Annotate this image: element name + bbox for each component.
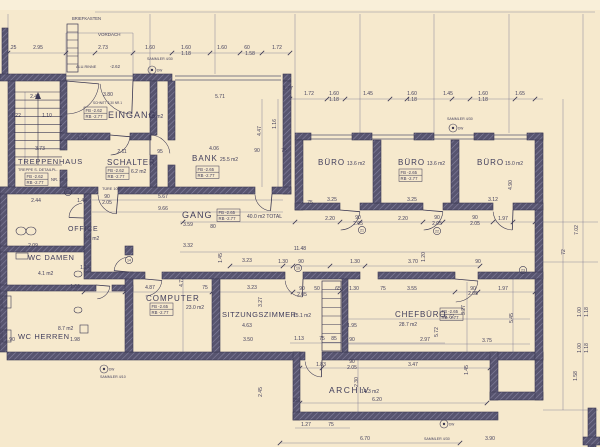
wall-segment [212,279,220,352]
room-area-label: 14.3 m2 [361,389,379,395]
dimension-label: 1.30 [349,286,359,292]
dimension-label: 3.25 [407,197,417,203]
sammler-symbol-label: DW [109,368,114,372]
wall-segment [295,203,340,210]
dimension-label: 1.20 [421,252,427,262]
room-label-bank: BANK [192,154,218,163]
dimension-label: 2.97 [420,337,430,343]
room-area-label: 15.1 m2 [293,313,311,319]
dimension-label: 95 [157,149,163,155]
level-tag-text: RB -2.77 [219,216,237,221]
sammler-symbol-label: DW [449,423,454,427]
dimension-label: 6.20 [372,397,382,403]
wall-segment [513,203,543,210]
dimension-label: 65 [335,286,341,292]
wall-segment [8,81,15,187]
room-label-office: OFFICE [68,226,98,233]
level-tag-text: RB -2.77 [108,174,126,179]
door-tag-number: 23 [521,268,525,272]
level-tag-text: FB -2.65 [442,309,459,314]
note-label: BRIEFKASTEN [72,16,101,21]
wall-segment [272,187,291,194]
room-area-label: 23.0 m2 [186,305,204,311]
room-area-label: 13.6 m2 [427,161,445,167]
wall-segment [2,28,8,78]
wall-segment [125,246,133,255]
room-area-label: 4.1 m2 [38,271,54,277]
level-tag-text: RB -2.77 [401,176,419,181]
dimension-label: 1.45 [443,91,453,97]
wall-segment [303,272,360,279]
level-tag-text: FB -2.65 [152,304,169,309]
dimension-label: 1.95 [347,323,357,329]
wall-segment [342,279,348,352]
dimension-label: 2.09 [28,243,38,249]
dimension-label: 1.00 [577,343,583,353]
dimension-label: 5.72 [434,327,440,337]
note-label: SAMMLER 4/30 [424,437,450,441]
dimension-label: 2.45 [258,387,264,397]
room-area-label: 8.7 m2 [58,326,74,332]
dimension-label: 90 [298,259,304,265]
wall-segment [168,165,175,187]
wall-segment [373,140,381,203]
wall-segment [84,194,91,272]
level-tag-text: FB -2.65 [219,210,236,215]
dimension-label: 1.90 [5,337,15,343]
dimension-label: 1.18 [329,97,339,103]
room-label-schalter: SCHALTER [107,158,155,167]
dimension-label: 1.83 [316,362,326,368]
wall-segment [84,272,145,279]
note-label: -2.62 [110,64,121,69]
dimension-label: 1.06 [70,284,80,290]
dimension-label: 1.14 [80,265,90,271]
wall-segment [378,272,455,279]
room-area-label: 25.5 m2 [220,157,238,163]
dimension-label: 90 [475,259,481,265]
room-label-buero-1: BÜRO [318,158,345,167]
dimension-label: 4.06 [209,146,219,152]
room-area-label: 4.9 m2 [84,236,100,242]
wall-segment [451,140,459,203]
dimension-label: 3.23 [247,285,257,291]
level-tag-text: FB -2.65 [401,170,418,175]
wall-segment [414,133,434,140]
dimension-label: 75 [380,286,386,292]
dimension-label: 1.72 [304,91,314,97]
dimension-label: 3.55 [407,286,417,292]
room-label-wc-damen: WC DAMEN [28,253,74,262]
note-label: TÜRE 100 [102,187,120,191]
room-area-label: 15.0 m2 [505,161,523,167]
room-label-sitzungszimmer: SITZUNGSZIMMER [222,310,297,319]
room-area-label: 6.2 m2 [131,169,147,175]
dimension-label: 3.75 [482,338,492,344]
level-tag-text: FB -2.65 [198,167,215,172]
dimension-label: 11.48 [294,246,306,252]
dimension-label: 5.45 [509,313,515,323]
note-label: VORDACH [98,32,121,37]
sammler-symbol-label: DW [157,69,162,73]
dimension-label: 1.65 [515,91,525,97]
dimension-label: 1.45 [363,91,373,97]
level-tag-text: FB -2.62 [27,174,44,179]
dimension-label: 1.98 [70,337,80,343]
dimension-label: 2.05 [347,365,357,371]
dimension-label: 3.80 [103,92,113,98]
wall-segment [352,133,372,140]
dimension-label: 25 [293,398,299,404]
dimension-label: 1.30 [278,259,288,265]
dimension-label: 2.05 [353,221,363,227]
dimension-label: 1.10 [42,113,52,119]
level-tag-text: FB -2.62 [86,108,103,113]
sammler-symbol-dot [151,69,153,71]
dimension-label: 3.12 [488,197,498,203]
wall-segment [150,81,157,135]
level-tag-text: RB -2.77 [86,114,104,119]
room-label-chefbuero: CHEFBÜRO [395,310,446,319]
dimension-label: 1.30 [350,259,360,265]
wall-segment [7,352,305,360]
dimension-label: 72 [561,249,567,255]
room-label-wc-herren: WC HERREN [18,332,70,341]
wall-segment [0,285,96,291]
dimension-label: 1.60 [145,45,155,51]
room-area-label: 40.0 m2 TOTAL [247,214,282,220]
wall-segment [295,140,303,210]
dimension-label: 4.63 [242,323,252,329]
dimension-label: 4.72 [179,277,185,287]
dimension-label: 2.05 [468,291,478,297]
wall-segment [322,352,493,360]
note-label: SAMMLER 4/10 [100,375,126,379]
dimension-label: 1.60 [217,45,227,51]
floor-plan-svg: .252.952.731.601.601.181.60601.581.721.7… [0,0,600,447]
dimension-label: 1.45 [218,253,224,263]
wall-segment [283,74,291,81]
level-tag-text: RB -2.77 [152,310,170,315]
dimension-label: 1.77 [283,86,293,92]
dimension-label: 5.71 [215,94,225,100]
wall-segment [478,272,543,279]
sammler-symbol-dot [452,127,454,129]
room-label-treppenhaus: TREPPENHAUS [18,157,83,166]
wall-segment [0,187,98,194]
dimension-label: 2.05 [102,200,112,206]
dimension-label: 2.11 [117,149,127,155]
dimension-label: 1.45 [464,365,470,375]
dimension-label: 2.05 [297,292,307,298]
level-tag-text: RB -2.77 [27,180,45,185]
dimension-label: 3.47 [408,362,418,368]
dimension-label: 9.66 [158,206,168,212]
dimension-label: 75 [202,285,208,291]
door-tag-number: 22 [435,229,439,233]
dimension-label: 7.02 [574,225,580,235]
dimension-label: 1.18 [584,343,590,353]
dimension-label: 1.97 [498,216,508,222]
note-label: ALU.RINNE [76,65,97,69]
room-area-label: 7.6 m2 [148,114,164,120]
wall-segment [360,203,423,210]
dimension-label: 75 [328,422,334,428]
door-leaf [69,218,84,219]
dimension-label: 2.95 [33,45,43,51]
door-tag-number: 21 [360,228,364,232]
level-tag-text: RB -2.77 [198,173,216,178]
level-tag-text: RB -2.77 [442,315,460,320]
room-label-gang: GANG [182,210,213,220]
sammler-symbol-dot [443,423,445,425]
dimension-label: 1.18 [181,51,191,57]
dimension-label: 2.20 [398,216,408,222]
room-area-label: 28.7 m2 [399,322,417,328]
dimension-label: 3.27 [258,297,264,307]
sammler-symbol-label: DW [458,127,463,131]
sammler-symbol-dot [103,368,105,370]
dimension-label: 2.20 [325,216,335,222]
door-tag-number: 14 [127,258,131,262]
dimension-label: 1.13 [294,336,304,342]
dimension-label: 3.32 [183,243,193,249]
room-extra-label: SCHNITT 2.30 NR.1 [93,101,122,105]
wall-segment [443,203,493,210]
room-label-buero-3: BÜRO [477,158,504,167]
dimension-label: 90 [254,148,260,154]
wall-segment [0,74,66,81]
dimension-label: 1.18 [584,307,590,317]
room-extra-label: NR. 20-4 [51,177,68,182]
room-sub-label: TREPPE S. DETAILPL. [18,168,58,172]
wall-segment [295,133,311,140]
dimension-label: 3.73 [35,146,45,152]
wall-segment [283,81,291,194]
dimension-label: 1.22 [11,113,21,119]
dimension-label: 1.27 [301,422,311,428]
dimension-label: 1.16 [272,119,278,129]
wall-segment [168,81,175,140]
dimension-label: 1.44 [77,198,87,204]
wall-segment [583,437,600,445]
wall-segment [125,272,133,352]
dimension-label: 4.87 [145,285,155,291]
level-tag-text: FB -2.62 [108,168,125,173]
dimension-label: 3.23 [242,258,252,264]
room-label-buero-2: BÜRO [398,158,425,167]
wall-segment [0,246,84,252]
dimension-label: 2.05 [470,221,480,227]
dimension-label: 4.90 [508,180,514,190]
dimension-label: 1.34 [77,136,87,142]
paper-edge [0,0,600,10]
dimension-label: 80 [210,224,216,230]
dimension-label: 90 [349,337,355,343]
dimension-label: 2.73 [98,45,108,51]
dimension-label: 1.58 [573,371,579,381]
dimension-label: 1.18 [407,97,417,103]
dimension-label: 3.25 [327,197,337,203]
dimension-label: 1.72 [272,45,282,51]
dimension-label: 3.90 [485,436,495,442]
wall-segment [293,412,498,420]
dimension-label: 3.59 [183,222,193,228]
note-label: SAMMLER 4/30 [447,117,473,121]
dimension-label: 5.67 [158,194,168,200]
floor-plan-drawing: .252.952.731.601.601.181.60601.581.721.7… [0,0,600,447]
door-tag-number: 19 [296,266,300,270]
dimension-label: 2.44 [31,198,41,204]
dimension-label: 1.58 [245,51,255,57]
wall-segment [130,133,151,140]
dimension-label: 2.44 [30,94,40,100]
dimension-label: 1.00 [577,307,583,317]
dimension-label: 4.47 [257,126,263,136]
door-tag-number: 10 [66,190,70,194]
dimension-label: 2.05 [432,221,442,227]
wall-segment [474,133,494,140]
wall-segment [118,187,255,194]
dimension-label: 3.70 [408,259,418,265]
wall-segment [133,74,172,81]
room-label-computer: COMPUTER [146,294,200,303]
wall-segment [0,187,7,352]
dimension-label: 3.50 [243,337,253,343]
dimension-label: 75 [319,336,325,342]
wall-segment [293,352,300,420]
dimension-label: 75 [307,200,313,206]
room-area-label: 13.6 m2 [347,161,365,167]
dimension-label: .25 [10,45,17,51]
dimension-label: 1.97 [498,286,508,292]
wall-segment [535,133,543,360]
dimension-label: 75 [281,148,287,154]
dimension-label: 3.27 [461,305,467,315]
dimension-label: 85 [331,336,337,342]
dimension-label: 50 [314,286,320,292]
dimension-label: 1.18 [478,97,488,103]
dimension-label: 6.70 [360,436,370,442]
note-label: SAMMLER 4/30 [147,57,173,61]
wall-segment [527,133,543,140]
